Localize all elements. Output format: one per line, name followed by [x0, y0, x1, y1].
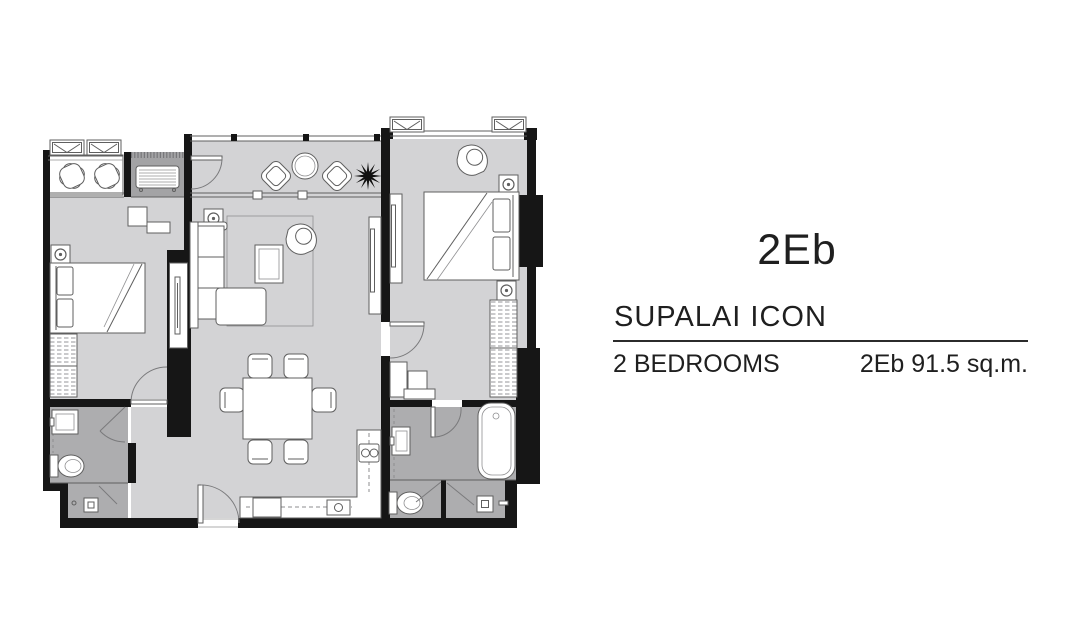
chair-icon: [284, 354, 308, 378]
pillow-icon: [57, 299, 73, 327]
shower-drain-icon: [84, 498, 98, 512]
pillow-icon: [57, 267, 73, 295]
shower-drain-icon: [477, 496, 493, 512]
chair-icon: [312, 388, 336, 412]
divider-line: [613, 340, 1028, 342]
window-box-icon: [50, 140, 84, 155]
shelf-icon: [147, 222, 170, 233]
appliance-icon: [253, 498, 281, 517]
dining-table-icon: [243, 378, 312, 439]
cooktop-icon: [327, 500, 350, 515]
pillow-icon: [493, 237, 510, 270]
floor-plan-drawing: [0, 0, 1080, 640]
round-table-icon: [292, 153, 318, 179]
chair-icon: [248, 440, 272, 464]
window-box-icon: [87, 140, 121, 155]
spec-row: 2 BEDROOMS 2Eb 91.5 sq.m.: [613, 350, 1028, 379]
bedrooms-label: 2 BEDROOMS: [613, 350, 780, 379]
window-box-icon: [390, 117, 424, 132]
toilet-icon: [389, 492, 397, 514]
floorplan-page: 2Eb SUPALAI ICON 2 BEDROOMS 2Eb 91.5 sq.…: [0, 0, 1080, 640]
ac-unit-icon: [51, 245, 70, 264]
sofa-icon: [198, 226, 224, 257]
project-name: SUPALAI ICON: [614, 301, 827, 334]
tv-niche-bedroom2: [170, 263, 188, 348]
chaise-icon: [216, 288, 266, 325]
chair-icon: [220, 388, 244, 412]
bathtub-icon: [478, 403, 515, 479]
ac-alcove: [136, 166, 179, 192]
balcony-door: [191, 156, 222, 160]
toilet-icon: [50, 455, 58, 477]
master-bedroom-door: [390, 322, 424, 326]
bench-icon: [404, 389, 435, 399]
pillow-icon: [493, 199, 510, 232]
bedroom2-door: [131, 400, 167, 404]
nightstand-icon: [128, 207, 147, 226]
unit-code: 2Eb: [589, 226, 1005, 275]
area-label: 2Eb 91.5 sq.m.: [860, 350, 1028, 379]
ac-unit-icon: [499, 175, 518, 194]
chair-icon: [248, 354, 272, 378]
ac-unit-icon: [497, 281, 516, 300]
entry-door: [198, 485, 203, 523]
window-box-icon: [492, 117, 526, 132]
chair-icon: [284, 440, 308, 464]
